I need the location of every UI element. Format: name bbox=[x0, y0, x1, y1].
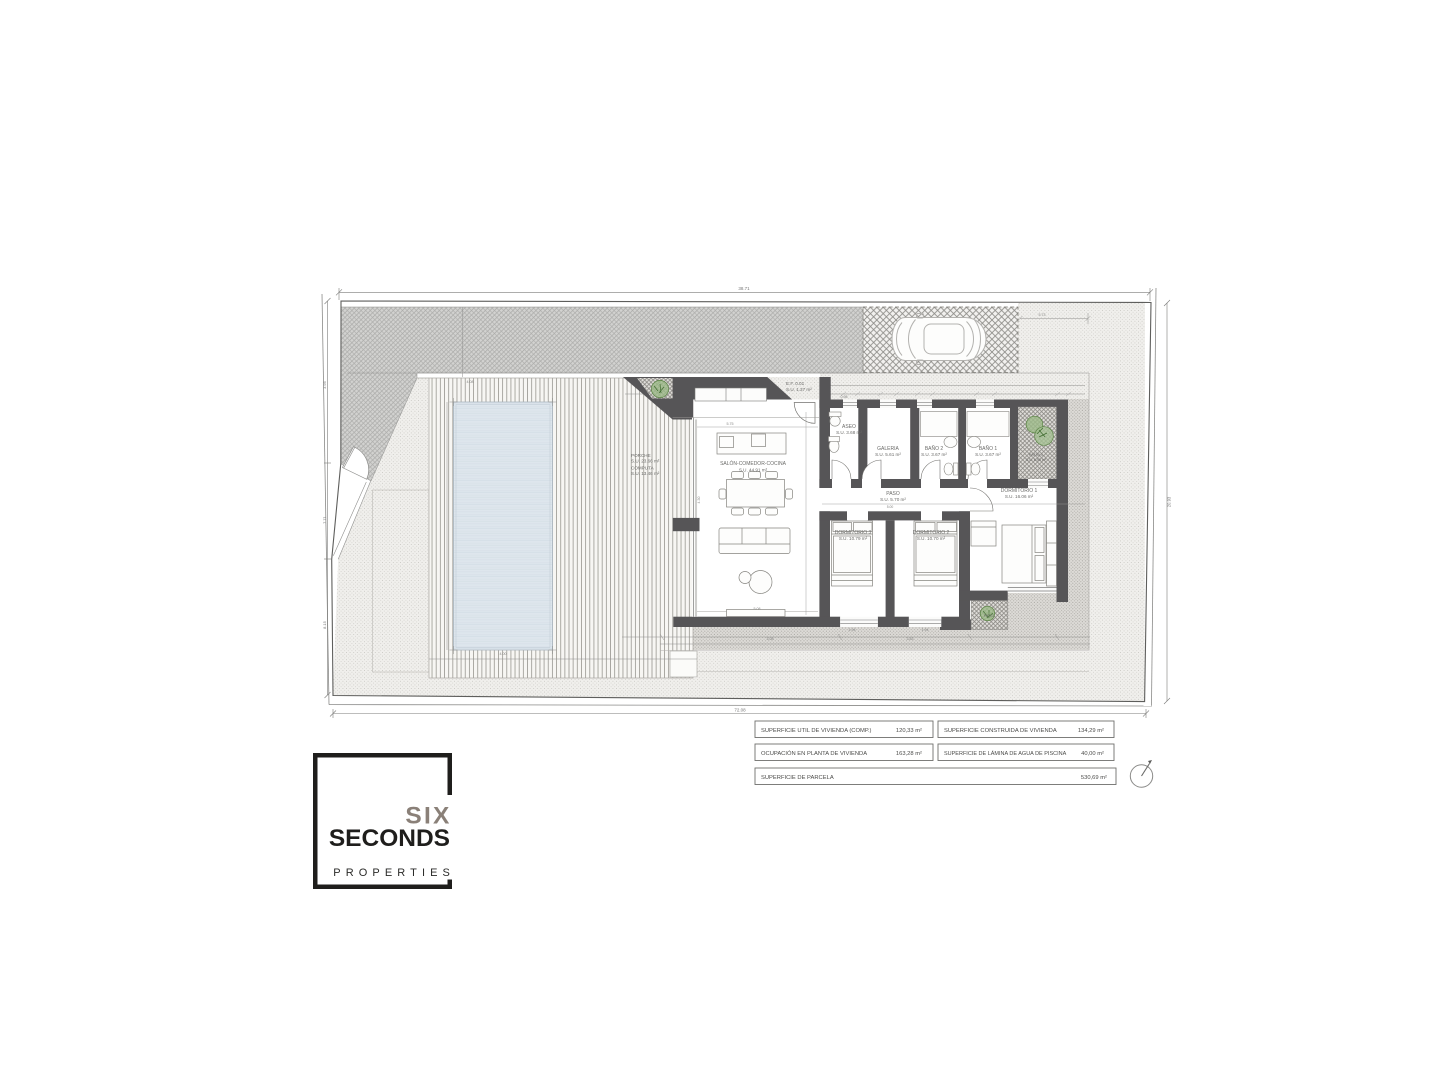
svg-text:120,33 m²: 120,33 m² bbox=[896, 728, 922, 734]
svg-text:SUPERFICIE DE LÁMINA DE AGUA D: SUPERFICIE DE LÁMINA DE AGUA DE PISCINA bbox=[944, 750, 1067, 757]
svg-text:163,28 m²: 163,28 m² bbox=[896, 751, 922, 757]
svg-text:SUPERFICIE CONSTRUIDA DE VIVIE: SUPERFICIE CONSTRUIDA DE VIVIENDA bbox=[944, 728, 1057, 734]
svg-text:S.U. 23.66 m²: S.U. 23.66 m² bbox=[631, 459, 660, 464]
svg-text:5.00: 5.00 bbox=[887, 505, 894, 509]
svg-text:5.73: 5.73 bbox=[1039, 313, 1046, 317]
svg-text:S.U. 3.67 m²: S.U. 3.67 m² bbox=[921, 452, 947, 457]
svg-text:530,69 m²: 530,69 m² bbox=[1081, 775, 1107, 781]
svg-text:E.F. 0.01: E.F. 0.01 bbox=[786, 381, 805, 386]
svg-text:S.U. 3.67 m²: S.U. 3.67 m² bbox=[975, 452, 1001, 457]
svg-text:SALÓN-COMEDOR-COCINA: SALÓN-COMEDOR-COCINA bbox=[720, 460, 787, 467]
svg-text:5.75: 5.75 bbox=[727, 422, 734, 426]
svg-text:S.U. 10.70 m²: S.U. 10.70 m² bbox=[917, 536, 946, 541]
svg-text:134,29 m²: 134,29 m² bbox=[1078, 728, 1104, 734]
svg-text:S.U. 44.91 m²: S.U. 44.91 m² bbox=[739, 468, 768, 473]
svg-text:PROPERTIES: PROPERTIES bbox=[333, 867, 455, 879]
svg-text:3.95: 3.95 bbox=[322, 380, 327, 389]
svg-text:OCUPACIÓN EN PLANTA DE VIVIEND: OCUPACIÓN EN PLANTA DE VIVIENDA bbox=[761, 750, 867, 757]
svg-text:SUPERFICIE DE PARCELA: SUPERFICIE DE PARCELA bbox=[761, 775, 834, 781]
svg-text:SECONDS: SECONDS bbox=[329, 825, 450, 852]
svg-text:1.94: 1.94 bbox=[922, 628, 929, 632]
svg-text:S.U. 6.95 m²: S.U. 6.95 m² bbox=[1026, 458, 1047, 462]
svg-text:20.93: 20.93 bbox=[1167, 496, 1172, 507]
svg-text:S.U. 3.68 m²: S.U. 3.68 m² bbox=[836, 430, 862, 435]
svg-text:S.U. 16.06 m²: S.U. 16.06 m² bbox=[1005, 494, 1034, 499]
svg-text:S.U. 5.70 m²: S.U. 5.70 m² bbox=[880, 497, 906, 502]
svg-text:COMPUTA: COMPUTA bbox=[631, 466, 655, 471]
svg-text:4.00: 4.00 bbox=[500, 652, 507, 656]
svg-text:S.U. 1.37 m²: S.U. 1.37 m² bbox=[786, 387, 812, 392]
svg-text:1.94: 1.94 bbox=[849, 628, 856, 632]
svg-text:3.08: 3.08 bbox=[767, 637, 774, 641]
svg-text:4.08: 4.08 bbox=[467, 380, 474, 384]
svg-text:S.U. 5.61 m²: S.U. 5.61 m² bbox=[875, 452, 901, 457]
svg-text:BAÑO 1: BAÑO 1 bbox=[979, 445, 998, 452]
svg-text:PATIO 1: PATIO 1 bbox=[1029, 453, 1043, 457]
svg-text:72.08: 72.08 bbox=[734, 708, 746, 713]
svg-text:8.15: 8.15 bbox=[322, 620, 327, 629]
svg-text:S.U. 10.79 m²: S.U. 10.79 m² bbox=[839, 536, 868, 541]
svg-text:40,00 m²: 40,00 m² bbox=[1081, 751, 1104, 757]
svg-text:0.98: 0.98 bbox=[841, 395, 848, 399]
svg-text:4.30: 4.30 bbox=[697, 497, 701, 504]
svg-text:PORCHE: PORCHE bbox=[631, 453, 651, 458]
svg-text:S.U. 13.46 m²: S.U. 13.46 m² bbox=[631, 471, 660, 476]
svg-text:BAÑO 2: BAÑO 2 bbox=[925, 445, 944, 452]
svg-text:3.83: 3.83 bbox=[907, 637, 914, 641]
svg-text:PATIO: PATIO bbox=[984, 614, 994, 618]
svg-text:38.71: 38.71 bbox=[738, 286, 750, 291]
svg-text:7.71: 7.71 bbox=[322, 515, 327, 524]
svg-text:SUPERFICIE UTIL DE VIVIENDA (: SUPERFICIE UTIL DE VIVIENDA (COMP.) bbox=[761, 728, 872, 734]
